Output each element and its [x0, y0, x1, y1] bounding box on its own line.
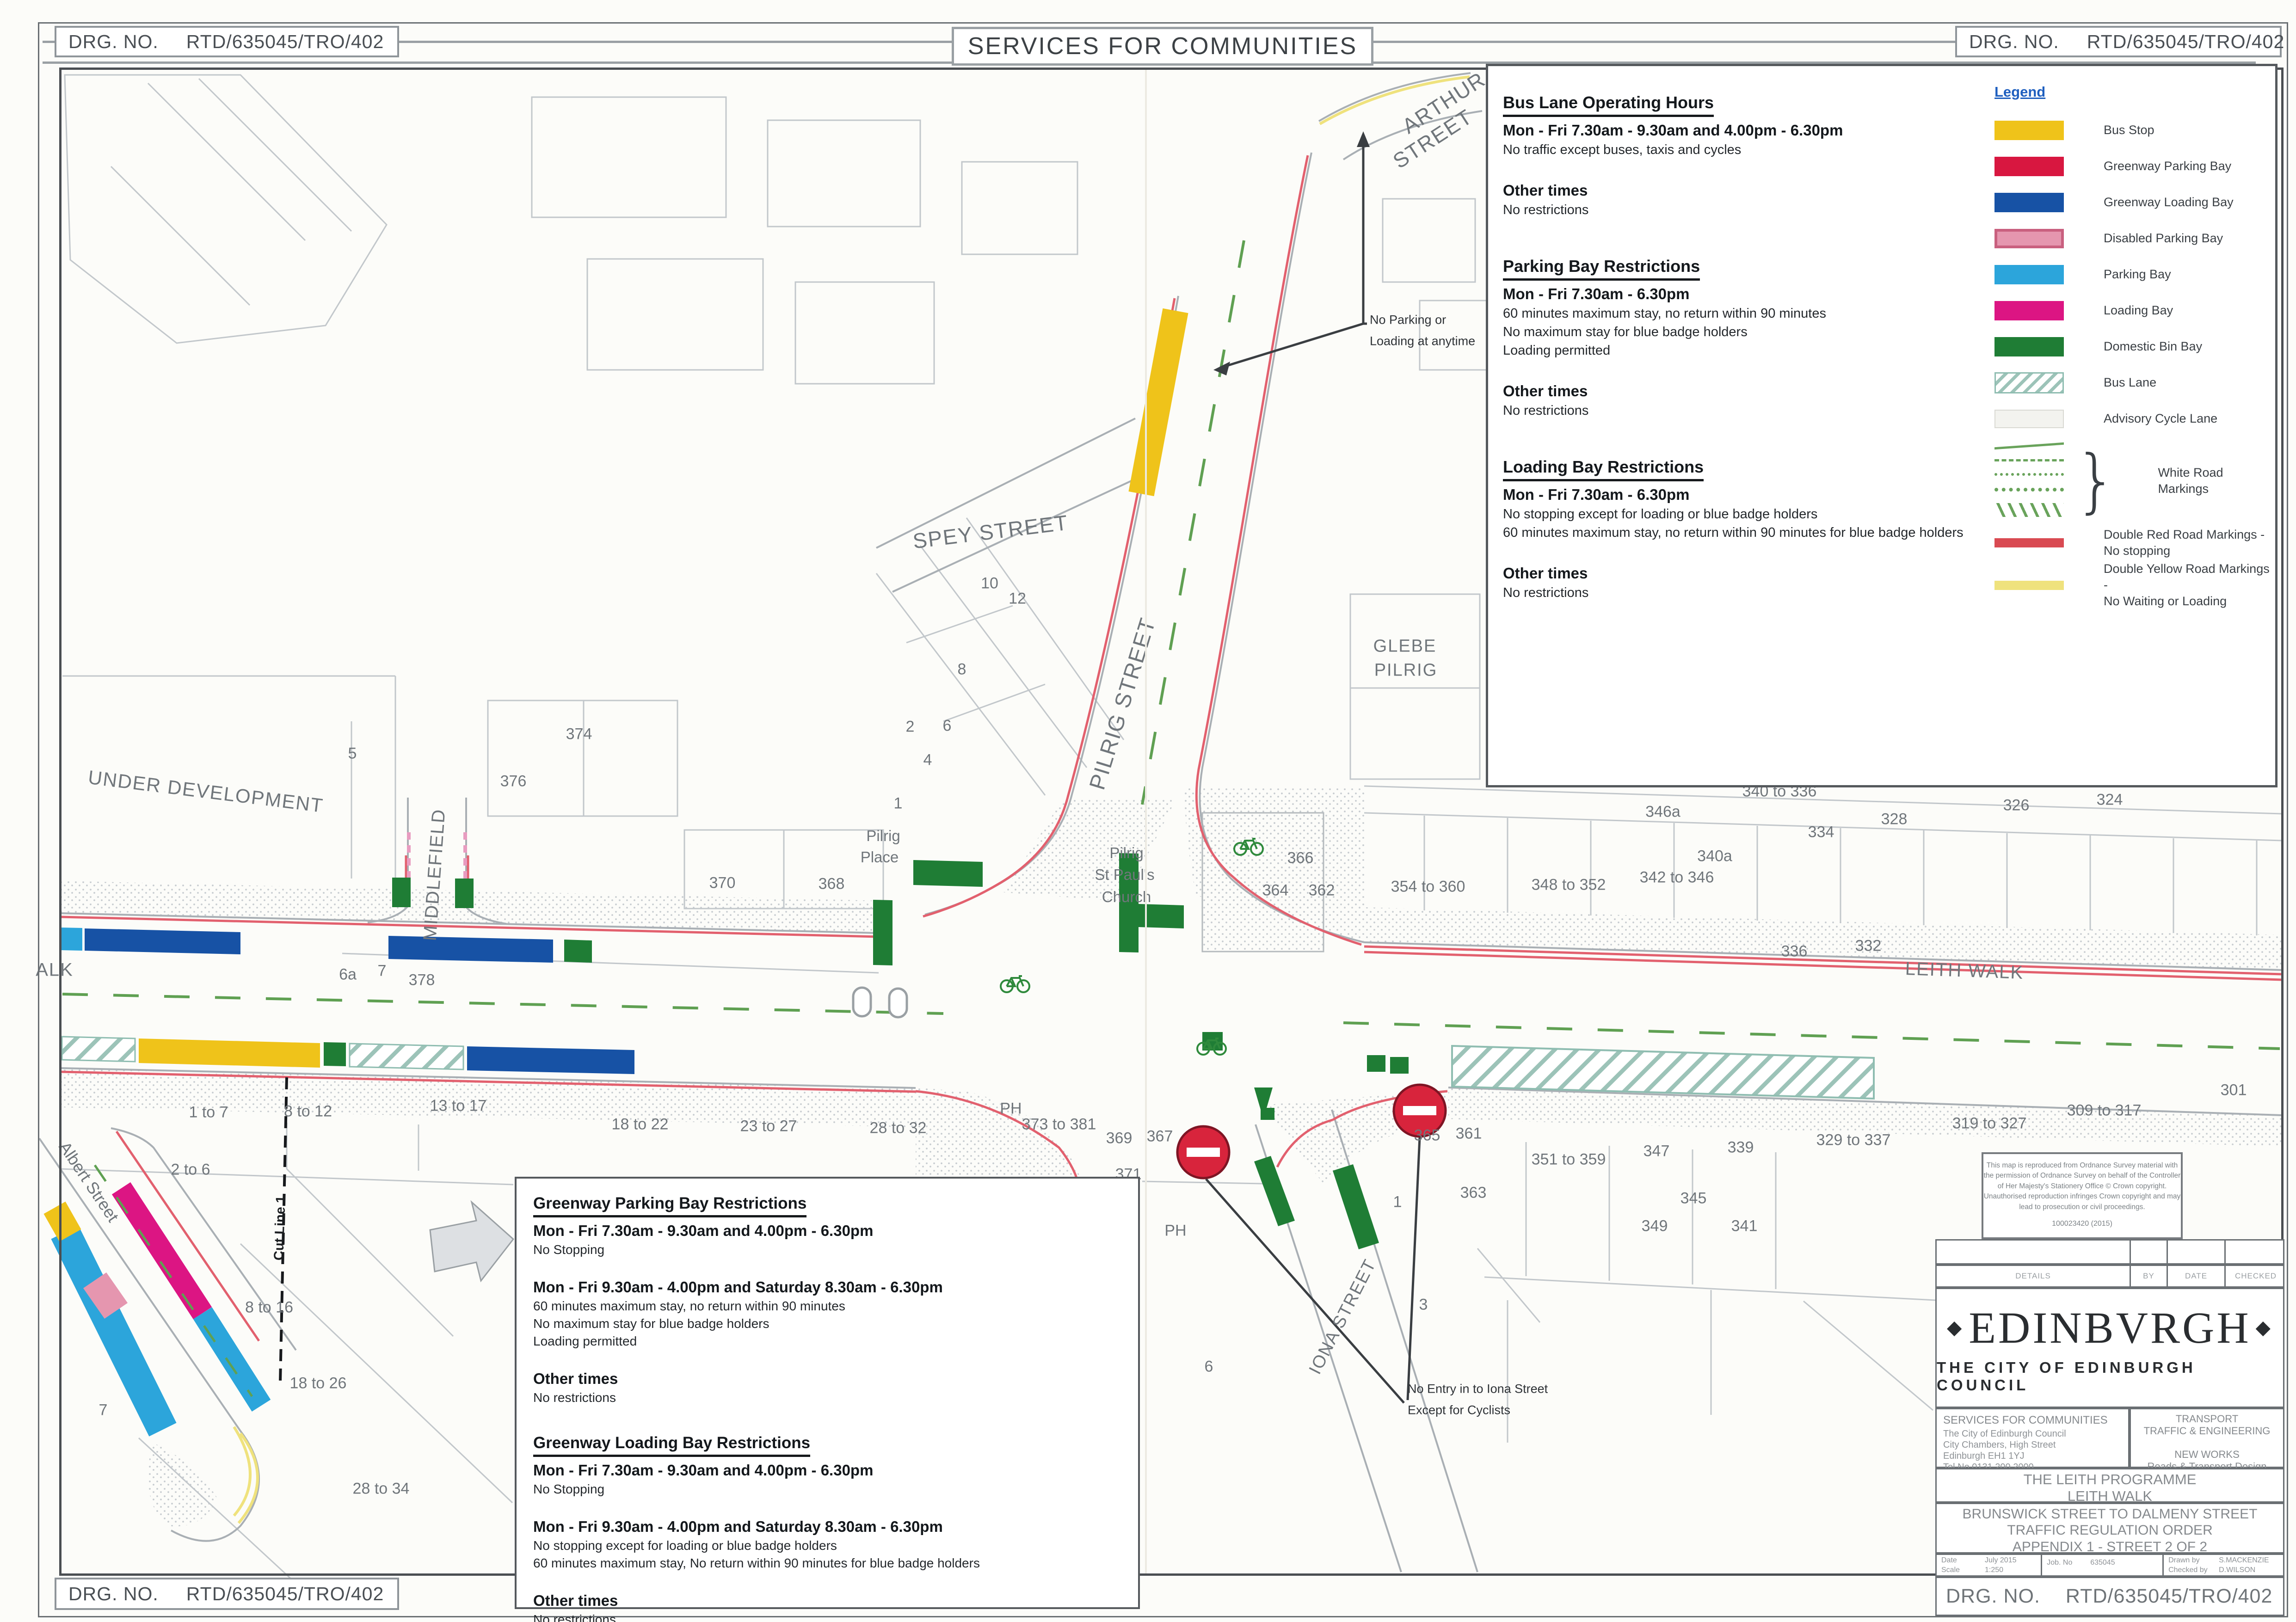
double-swatch — [1994, 581, 2064, 590]
legend-title: Legend — [1994, 84, 2272, 100]
restriction-text: No restrictions — [533, 1612, 1125, 1622]
drg-box-bottom-right: DRG. NO. RTD/635045/TRO/402 — [1935, 1577, 2284, 1616]
restriction-rule: Other timesNo restrictions — [1503, 565, 1984, 601]
restriction-period: Other times — [1503, 565, 1984, 582]
restriction-period: Mon - Fri 7.30am - 6.30pm — [1503, 486, 1984, 504]
legend-item: Double Yellow Road Markings -No Waiting … — [1994, 561, 2272, 609]
solid-swatch — [1994, 121, 2064, 140]
brace-glyph: } — [2074, 450, 2118, 512]
restriction-period: Other times — [533, 1592, 1125, 1610]
rev-cell — [2168, 1241, 2226, 1263]
os-copyright-lines: This map is reproduced from Ordnance Sur… — [1983, 1161, 2181, 1212]
drg-number: RTD/635045/TRO/402 — [186, 31, 384, 53]
drawing-meta-row: DateJuly 2015 Scale1:250 Job. No635045 D… — [1935, 1554, 2284, 1577]
restriction-block: Loading Bay RestrictionsMon - Fri 7.30am… — [1503, 457, 1984, 601]
greenway-panel: Greenway Parking Bay RestrictionsMon - F… — [515, 1177, 1140, 1609]
legend-item: Domestic Bin Bay — [1994, 329, 2272, 365]
restriction-text: No maximum stay for blue badge holders — [1503, 325, 1984, 340]
text-line: LEITH WALK — [1937, 1488, 2283, 1505]
drg-label: DRG. NO. — [1946, 1585, 2040, 1608]
legend-label: Parking Bay — [2104, 266, 2171, 283]
text-line: TRAFFIC & ENGINEERING — [2134, 1425, 2280, 1437]
drawn-label: Drawn by — [2168, 1556, 2212, 1565]
checked-label: Checked by — [2168, 1566, 2212, 1574]
legend-item: }White Road Markings — [1994, 437, 2272, 525]
outline-swatch — [1994, 410, 2064, 428]
text-line: APPENDIX 1 - STREET 2 OF 2 — [1937, 1539, 2283, 1555]
restriction-rule: Mon - Fri 9.30am - 4.00pm and Saturday 8… — [533, 1518, 1125, 1571]
restriction-text: No stopping except for loading or blue b… — [533, 1538, 1125, 1553]
restriction-block: Greenway Loading Bay RestrictionsMon - F… — [533, 1434, 1125, 1622]
restriction-text: No Stopping — [533, 1482, 1125, 1497]
logo-diamond-icon: ◆ — [1947, 1316, 1964, 1339]
restriction-heading: Parking Bay Restrictions — [1503, 257, 1700, 281]
legend-label: Disabled Parking Bay — [2104, 230, 2223, 246]
restriction-text: 60 minutes maximum stay, no return withi… — [1503, 306, 1984, 321]
restriction-heading: Loading Bay Restrictions — [1503, 457, 1704, 481]
restriction-text: 60 minutes maximum stay, no return withi… — [533, 1299, 1125, 1314]
drawn-checked-cell: Drawn byS.MACKENZIE Checked byD.WILSON — [2164, 1555, 2283, 1575]
restriction-text: 60 minutes maximum stay, no return withi… — [1503, 525, 1984, 541]
restriction-rule: Mon - Fri 7.30am - 6.30pm60 minutes maxi… — [1503, 285, 1984, 358]
restriction-text: No restrictions — [1503, 203, 1984, 218]
restriction-period: Mon - Fri 9.30am - 4.00pm and Saturday 8… — [533, 1518, 1125, 1536]
info-blocks: Bus Lane Operating HoursMon - Fri 7.30am… — [1503, 93, 1984, 601]
legend-item: Parking Bay — [1994, 257, 2272, 293]
restriction-rule: Other timesNo restrictions — [533, 1592, 1125, 1622]
legend-label: Domestic Bin Bay — [2104, 338, 2202, 355]
legend-item: Disabled Parking Bay — [1994, 221, 2272, 257]
legend-item: Bus Lane — [1994, 365, 2272, 401]
restriction-period: Mon - Fri 7.30am - 6.30pm — [1503, 285, 1984, 303]
text-line: Unauthorised reproduction infringes Crow… — [1983, 1192, 2181, 1202]
checked-value: D.WILSON — [2219, 1566, 2255, 1574]
text-line: City Chambers, High Street — [1943, 1439, 2122, 1450]
scale-label: Scale — [1941, 1566, 1978, 1574]
logo-text: EDINBVRGH — [1969, 1302, 2251, 1353]
rev-header: DETAILS — [1937, 1266, 2131, 1286]
text-line — [2134, 1438, 2280, 1449]
marking-line — [1994, 488, 2064, 492]
sheet-title: SERVICES FOR COMMUNITIES — [952, 27, 1373, 66]
solid-swatch — [1994, 157, 2064, 176]
restriction-text: Loading permitted — [533, 1334, 1125, 1349]
legend-label: Greenway Loading Bay — [2104, 194, 2234, 210]
legend-item: Greenway Parking Bay — [1994, 148, 2272, 184]
marking-line — [1994, 473, 2064, 476]
text-line: BRUNSWICK STREET TO DALMENY STREET — [1937, 1506, 2283, 1522]
restriction-rule: Mon - Fri 7.30am - 9.30am and 4.00pm - 6… — [533, 1222, 1125, 1257]
restriction-period: Mon - Fri 7.30am - 9.30am and 4.00pm - 6… — [533, 1462, 1125, 1479]
legend-label: Double Red Road Markings -No stopping — [2104, 527, 2265, 559]
legend-label: White Road Markings — [2158, 465, 2272, 497]
rev-cell — [1937, 1241, 2131, 1263]
legend-label: Greenway Parking Bay — [2104, 158, 2231, 174]
restriction-period: Mon - Fri 7.30am - 9.30am and 4.00pm - 6… — [533, 1222, 1125, 1240]
legend-label: Bus Stop — [2104, 122, 2154, 138]
solid-swatch — [1994, 229, 2064, 248]
restriction-text: No traffic except buses, taxis and cycle… — [1503, 142, 1984, 158]
restriction-rule: Mon - Fri 7.30am - 9.30am and 4.00pm - 6… — [533, 1462, 1125, 1497]
council-logo-box: ◆ EDINBVRGH ◆ THE CITY OF EDINBURGH COUN… — [1935, 1288, 2284, 1408]
text-line: TRAFFIC REGULATION ORDER — [1937, 1522, 2283, 1538]
marking-line — [1994, 442, 2064, 449]
text-line: This map is reproduced from Ordnance Sur… — [1983, 1161, 2181, 1171]
restriction-heading: Greenway Loading Bay Restrictions — [533, 1434, 810, 1457]
rev-cell — [2226, 1241, 2286, 1263]
text-line: NEW WORKS — [2134, 1449, 2280, 1461]
drawn-value: S.MACKENZIE — [2219, 1556, 2269, 1565]
drg-number: RTD/635045/TRO/402 — [2066, 1585, 2272, 1608]
drawing-sheet: UNDER DEVELOPMENTMIDDLEFIELDSPEY STREETA… — [0, 0, 2296, 1622]
solid-swatch — [1994, 301, 2064, 320]
markings-swatch — [1994, 443, 2064, 519]
rev-header: BY — [2131, 1266, 2168, 1286]
restriction-period: Other times — [1503, 182, 1984, 199]
restriction-rule: Other timesNo restrictions — [533, 1370, 1125, 1405]
greenway-blocks: Greenway Parking Bay RestrictionsMon - F… — [533, 1194, 1125, 1622]
sheet-title-text: SERVICES FOR COMMUNITIES — [968, 32, 1357, 60]
text-line: TRANSPORT — [2134, 1413, 2280, 1425]
date-label: Date — [1941, 1556, 1978, 1565]
legend-label: Advisory Cycle Lane — [2104, 411, 2217, 427]
restriction-text: No Stopping — [533, 1242, 1125, 1257]
council-name: THE CITY OF EDINBURGH COUNCIL — [1937, 1359, 2283, 1394]
logo-diamond-icon: ◆ — [2256, 1316, 2273, 1339]
text-line: SERVICES FOR COMMUNITIES — [1943, 1414, 2122, 1427]
dept-left-lines: SERVICES FOR COMMUNITIESThe City of Edin… — [1935, 1408, 2130, 1468]
restriction-period: Mon - Fri 7.30am - 9.30am and 4.00pm - 6… — [1503, 122, 1984, 139]
legend-label: Bus Lane — [2104, 375, 2156, 391]
restriction-period: Other times — [533, 1370, 1125, 1388]
drg-label: DRG. NO. — [68, 31, 159, 53]
restriction-rule: Mon - Fri 9.30am - 4.00pm and Saturday 8… — [533, 1278, 1125, 1349]
drg-box-bottom-left: DRG. NO. RTD/635045/TRO/402 — [55, 1578, 399, 1610]
restriction-text: No stopping except for loading or blue b… — [1503, 507, 1984, 522]
drg-box-top-right: DRG. NO. RTD/635045/TRO/402 — [1955, 26, 2282, 57]
rev-cell — [2131, 1241, 2168, 1263]
restriction-text: No restrictions — [533, 1390, 1125, 1405]
restriction-block: Bus Lane Operating HoursMon - Fri 7.30am… — [1503, 93, 1984, 218]
legend-item: Double Red Road Markings -No stopping — [1994, 525, 2272, 561]
legend-label: Loading Bay — [2104, 302, 2173, 319]
text-line: the permission of Ordnance Survey on beh… — [1983, 1171, 2181, 1181]
restriction-block: Parking Bay RestrictionsMon - Fri 7.30am… — [1503, 257, 1984, 418]
solid-swatch — [1994, 337, 2064, 356]
job-label: Job. No — [2047, 1559, 2084, 1567]
restriction-text: 60 minutes maximum stay, No return withi… — [533, 1556, 1125, 1571]
job-value: 635045 — [2090, 1559, 2115, 1567]
edinburgh-logo: ◆ EDINBVRGH ◆ — [1947, 1302, 2273, 1353]
rev-header: CHECKED — [2226, 1266, 2286, 1286]
restriction-text: No maximum stay for blue badge holders — [533, 1316, 1125, 1331]
os-licence: 100023420 (2015) — [1983, 1220, 2181, 1228]
text-line: THE LEITH PROGRAMME — [1937, 1471, 2283, 1488]
restriction-text: No restrictions — [1503, 585, 1984, 601]
solid-swatch — [1994, 265, 2064, 284]
legend-item: Loading Bay — [1994, 293, 2272, 329]
rev-row-headers: DETAILSBYDATECHECKED — [1935, 1265, 2284, 1288]
restriction-rule: Mon - Fri 7.30am - 6.30pmNo stopping exc… — [1503, 486, 1984, 541]
drg-number: RTD/635045/TRO/402 — [2087, 31, 2284, 53]
drg-label: DRG. NO. — [68, 1583, 159, 1605]
double-swatch — [1994, 538, 2064, 547]
legend-label: Double Yellow Road Markings -No Waiting … — [2104, 561, 2272, 609]
text-line: of Her Majesty's Stationery Office © Cro… — [1983, 1181, 2181, 1192]
restriction-block: Greenway Parking Bay RestrictionsMon - F… — [533, 1194, 1125, 1405]
hatch-swatch — [1994, 372, 2064, 393]
programme-lines: THE LEITH PROGRAMMELEITH WALK — [1935, 1468, 2284, 1503]
restriction-period: Mon - Fri 9.30am - 4.00pm and Saturday 8… — [533, 1278, 1125, 1296]
restriction-rule: Other timesNo restrictions — [1503, 382, 1984, 418]
date-scale-cell: DateJuly 2015 Scale1:250 — [1937, 1555, 2042, 1575]
restriction-heading: Bus Lane Operating Hours — [1503, 93, 1714, 117]
legend-items: Bus StopGreenway Parking BayGreenway Loa… — [1994, 112, 2272, 609]
marking-line — [1994, 503, 2064, 517]
restriction-rule: Mon - Fri 7.30am - 9.30am and 4.00pm - 6… — [1503, 122, 1984, 158]
job-cell: Job. No635045 — [2042, 1555, 2164, 1575]
restrictions-legend-panel: Bus Lane Operating HoursMon - Fri 7.30am… — [1486, 64, 2278, 787]
legend-item: Advisory Cycle Lane — [1994, 401, 2272, 437]
drg-box-top-left: DRG. NO. RTD/635045/TRO/402 — [55, 26, 399, 57]
rev-row-empty — [1935, 1239, 2284, 1265]
restriction-period: Other times — [1503, 382, 1984, 400]
title-block: This map is reproduced from Ordnance Sur… — [1935, 1151, 2284, 1616]
restriction-heading: Greenway Parking Bay Restrictions — [533, 1194, 806, 1217]
date-value: July 2015 — [1985, 1556, 2017, 1565]
os-copyright-box: This map is reproduced from Ordnance Sur… — [1982, 1152, 2183, 1239]
legend-item: Greenway Loading Bay — [1994, 184, 2272, 221]
legend: Legend Bus StopGreenway Parking BayGreen… — [1994, 84, 2272, 609]
restriction-text: No restrictions — [1503, 403, 1984, 418]
drg-number: RTD/635045/TRO/402 — [186, 1583, 384, 1605]
text-line: lead to prosecution or civil proceedings… — [1983, 1202, 2181, 1212]
solid-swatch — [1994, 193, 2064, 212]
drg-label: DRG. NO. — [1969, 31, 2059, 53]
restriction-text: Loading permitted — [1503, 343, 1984, 358]
text-line: The City of Edinburgh Council — [1943, 1428, 2122, 1439]
legend-item: Bus Stop — [1994, 112, 2272, 148]
scale-value: 1:250 — [1985, 1566, 2003, 1574]
rev-header: DATE — [2168, 1266, 2226, 1286]
dept-right-lines: TRANSPORTTRAFFIC & ENGINEERINGNEW WORKSR… — [2130, 1408, 2284, 1468]
restriction-rule: Other timesNo restrictions — [1503, 182, 1984, 218]
scheme-lines: BRUNSWICK STREET TO DALMENY STREETTRAFFI… — [1935, 1503, 2284, 1554]
text-line: Edinburgh EH1 1YJ — [1943, 1450, 2122, 1462]
marking-line — [1994, 459, 2064, 461]
